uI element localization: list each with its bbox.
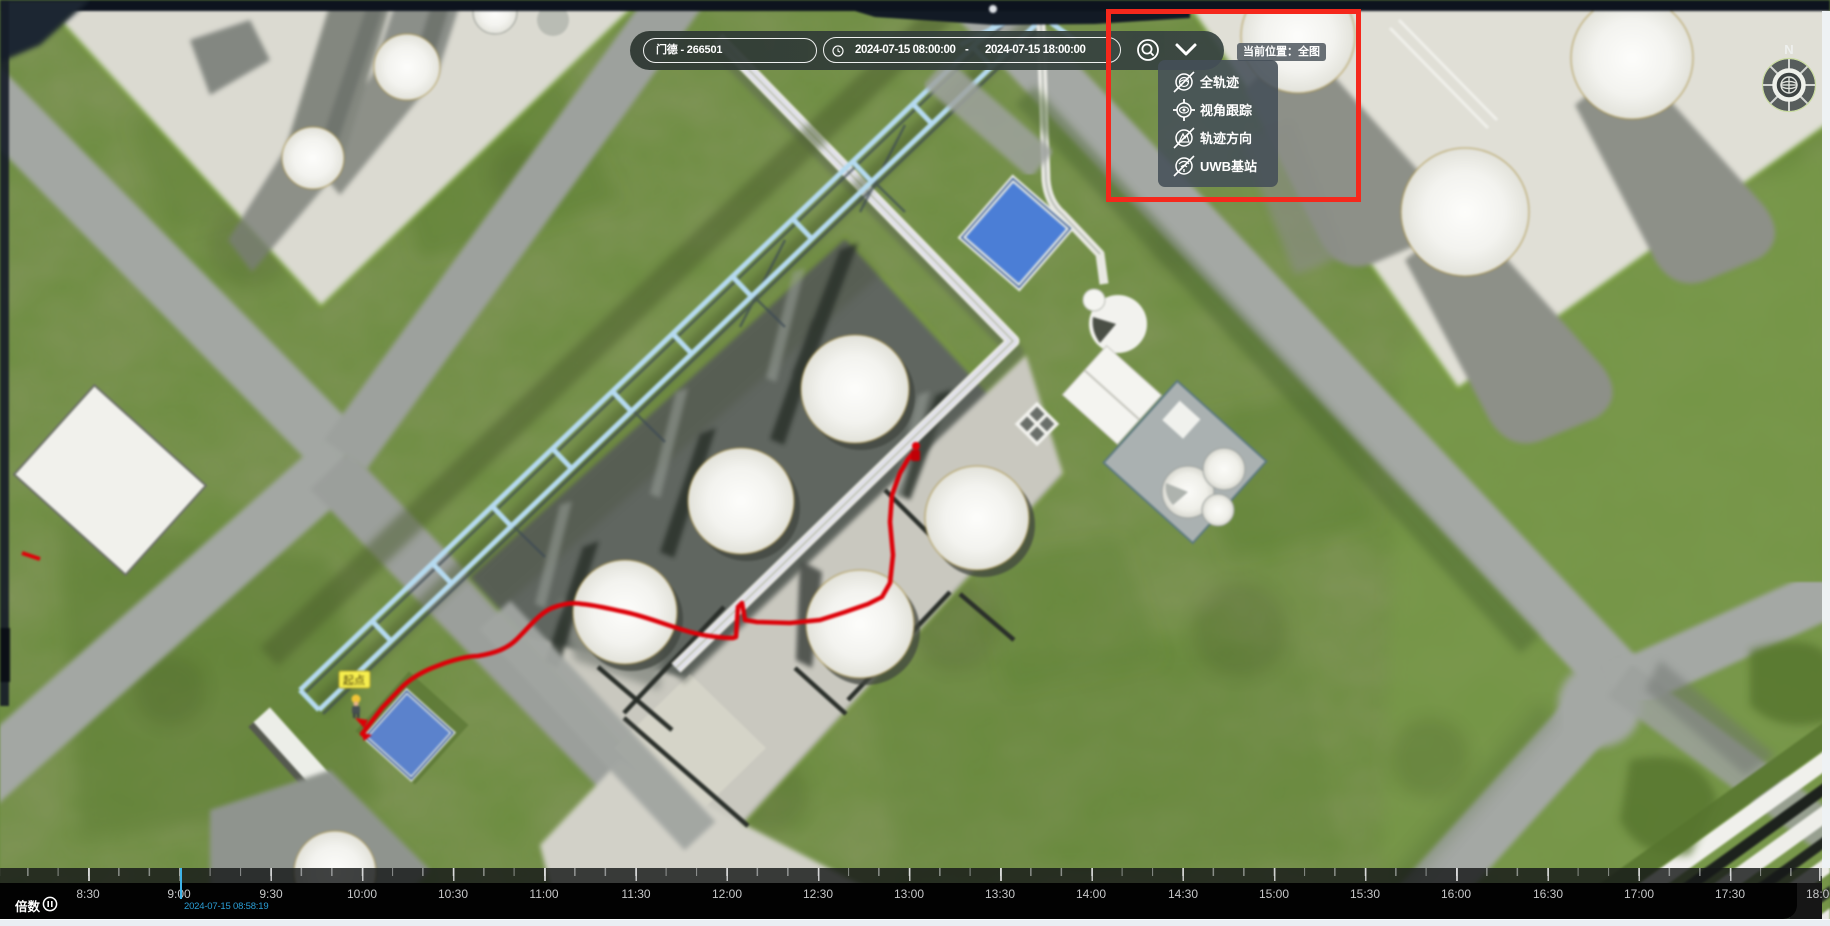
svg-text:N: N: [1784, 42, 1793, 57]
svg-text:起点: 起点: [343, 674, 365, 687]
